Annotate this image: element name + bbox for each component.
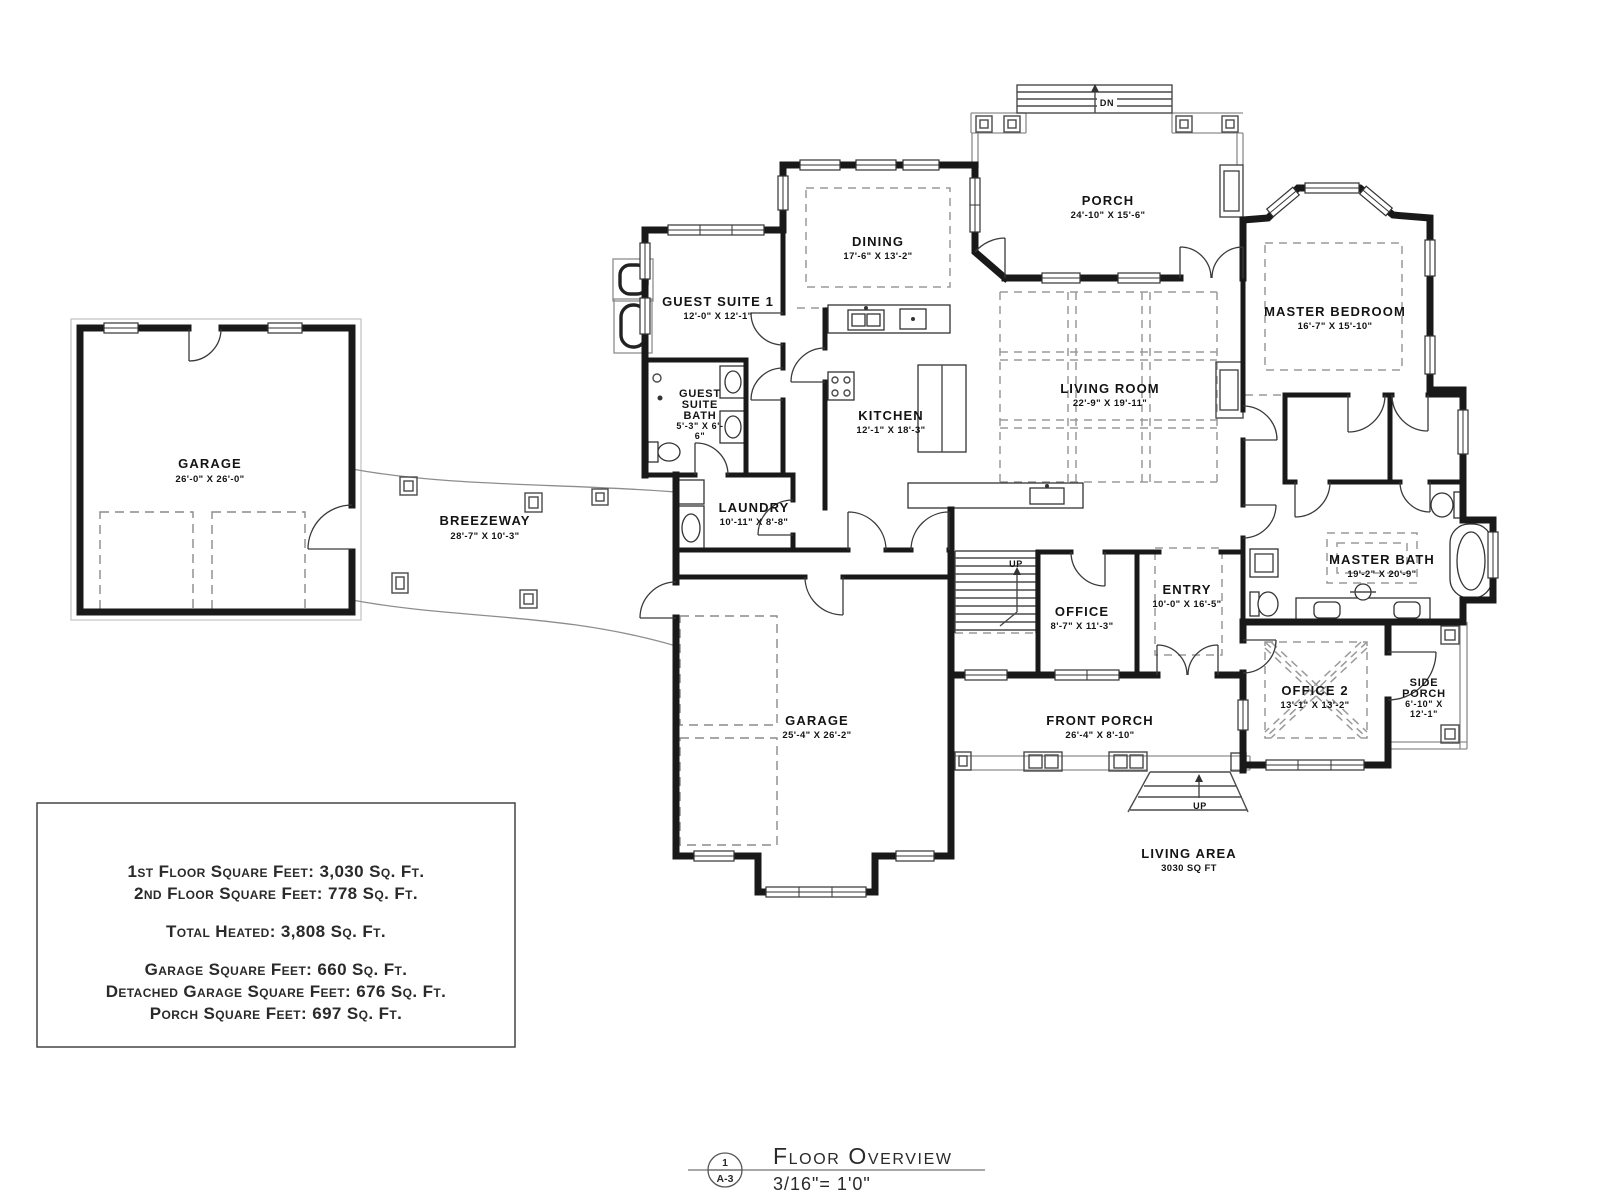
office2-dims: 13'-1" X 13'-2" [1280, 700, 1349, 711]
summary-line-2: 2nd Floor Square Feet: 778 Sq. Ft. [134, 884, 418, 903]
front-steps-arrow-icon [1195, 774, 1203, 782]
closet-door-2 [1392, 395, 1428, 431]
rear-porch-label: PORCH [1082, 193, 1134, 208]
entry-label: ENTRY [1162, 582, 1211, 597]
sheet-number: A-3 [717, 1173, 734, 1185]
garage-dims: 25'-4" X 26'-2" [782, 730, 851, 741]
guest-bath-toilet-tank [648, 442, 658, 462]
office-dims: 8'-7" X 11'-3" [1051, 621, 1114, 632]
bath-hall-door [1295, 482, 1330, 517]
detached-garage-label: GARAGE [178, 456, 242, 471]
master-bath-door [1243, 505, 1276, 538]
detail-number: 1 [722, 1157, 728, 1169]
detached-garage-dims: 26'-0" X 26'-0" [175, 474, 244, 485]
porch-door-right [1212, 247, 1243, 278]
laundry-dims: 10'-11" X 8'-8" [720, 517, 789, 528]
rear-porch-posts [976, 116, 1238, 132]
guest-suite-label: GUEST SUITE 1 [662, 294, 774, 309]
stairs-up-label: UP [1009, 559, 1023, 569]
drawing-scale: 3/16"= 1'0" [773, 1174, 871, 1194]
shower-head [653, 374, 661, 382]
porch-fireplace [1220, 165, 1243, 217]
breezeway-posts [392, 477, 608, 608]
living-area-value: 3030 SQ FT [1161, 863, 1217, 874]
kitchen-label: KITCHEN [858, 408, 923, 423]
front-steps [1128, 772, 1248, 812]
rear-steps-dn-label: DN [1100, 98, 1114, 108]
water-closet-door [1400, 482, 1430, 512]
summary-line-3: Total Heated: 3,808 Sq. Ft. [166, 922, 386, 941]
summary-line-5: Detached Garage Square Feet: 676 Sq. Ft. [106, 982, 447, 1001]
living-room-label: LIVING ROOM [1060, 381, 1160, 396]
detached-garage-entry-door [189, 329, 221, 361]
stairs [955, 551, 1036, 633]
laundry-label: LAUNDRY [719, 500, 790, 515]
detached-garage-parking-bays [100, 512, 305, 610]
kitchen-dims: 12'-1" X 18'-3" [856, 425, 925, 436]
laundry-cabinet [678, 480, 704, 504]
exterior-walls [80, 165, 1493, 892]
living-room-dims: 22'-9" X 19'-11" [1073, 398, 1147, 409]
living-area-label: LIVING AREA [1141, 846, 1236, 861]
entry-door-left [1157, 645, 1187, 675]
dining-label: DINING [852, 234, 904, 249]
rear-porch-dims: 24'-10" X 15'-6" [1071, 210, 1146, 221]
room-labels: GARAGE 26'-0" X 26'-0" BREEZEWAY 28'-7" … [175, 193, 1445, 741]
guest-bath-door [695, 443, 728, 475]
guest-bath-dims-2: 6" [695, 431, 705, 441]
living-room-builtin [1216, 362, 1243, 418]
master-bath-dims: 19'-2" X 20'-9" [1347, 569, 1416, 580]
master-hall-door [1243, 406, 1277, 440]
front-porch-label: FRONT PORCH [1046, 713, 1153, 728]
mb-toilet-bowl [1258, 592, 1278, 616]
master-bedroom-dims: 16'-7" X 15'-10" [1298, 321, 1373, 332]
hall-door-1 [848, 512, 886, 550]
front-porch-structure [952, 752, 1250, 771]
breezeway-house-door [640, 582, 676, 618]
front-porch-posts [955, 752, 1246, 771]
side-porch-dims-2: 12'-1" [1410, 709, 1438, 719]
detached-garage-side-door [308, 505, 352, 549]
office-label: OFFICE [1055, 604, 1109, 619]
rear-steps [1017, 84, 1172, 113]
master-bath-label: MASTER BATH [1329, 552, 1435, 567]
mb-shower [1250, 549, 1278, 577]
office2-label: OFFICE 2 [1281, 683, 1348, 698]
master-bedroom-label: MASTER BEDROOM [1264, 304, 1406, 319]
entry-door-right [1188, 645, 1218, 675]
cooktop [828, 372, 854, 400]
drawing-sheet: GARAGE 26'-0" X 26'-0" BREEZEWAY 28'-7" … [0, 0, 1600, 1200]
summary-line-4: Garage Square Feet: 660 Sq. Ft. [145, 960, 408, 979]
dining-dims: 17'-6" X 13'-2" [843, 251, 912, 262]
front-steps-up-label: UP [1193, 801, 1207, 811]
butler-sink [1030, 488, 1064, 504]
porch-door-left [1180, 247, 1211, 278]
side-porch-dims-1: 6'-10" X [1405, 699, 1443, 709]
entry-dims: 10'-0" X 16'-5" [1152, 599, 1221, 610]
floor-plan-svg: GARAGE 26'-0" X 26'-0" BREEZEWAY 28'-7" … [0, 0, 1600, 1200]
garage-label: GARAGE [785, 713, 849, 728]
guest-bath-dims-1: 5'-3" X 6'- [676, 421, 723, 431]
office-door [1071, 552, 1105, 586]
wc-toilet-bowl [1431, 493, 1453, 517]
breezeway-bottom-edge [352, 600, 676, 646]
summary-line-1: 1st Floor Square Feet: 3,030 Sq. Ft. [127, 862, 424, 881]
guest-suite-dims: 12'-0" X 12'-1" [683, 311, 752, 322]
drawing-title: Floor Overview [773, 1143, 953, 1169]
office2-door [1243, 640, 1276, 673]
front-porch-dims: 26'-4" X 8'-10" [1065, 730, 1134, 741]
guest-suite-door [751, 313, 783, 345]
kitchen-fixtures [828, 305, 1083, 508]
guest-closet-door [751, 368, 783, 400]
garage-hall-door [805, 577, 843, 615]
summary-box: 1st Floor Square Feet: 3,030 Sq. Ft. 2nd… [37, 803, 515, 1047]
kitchen-hall-door [791, 348, 825, 382]
closet-door-1 [1348, 395, 1385, 432]
hall-door-2 [911, 512, 949, 550]
guest-bath-toilet-bowl [658, 443, 680, 461]
breezeway-label: BREEZEWAY [439, 513, 530, 528]
summary-line-6: Porch Square Feet: 697 Sq. Ft. [150, 1004, 403, 1023]
breezeway-structure [352, 469, 676, 646]
title-block: 1 A-3 Floor Overview 3/16"= 1'0" [688, 1143, 985, 1194]
laundry-fixtures [678, 480, 704, 550]
kitchen-counter [828, 305, 950, 333]
garage-parking-bays [680, 616, 777, 845]
breezeway-dims: 28'-7" X 10'-3" [450, 531, 519, 542]
